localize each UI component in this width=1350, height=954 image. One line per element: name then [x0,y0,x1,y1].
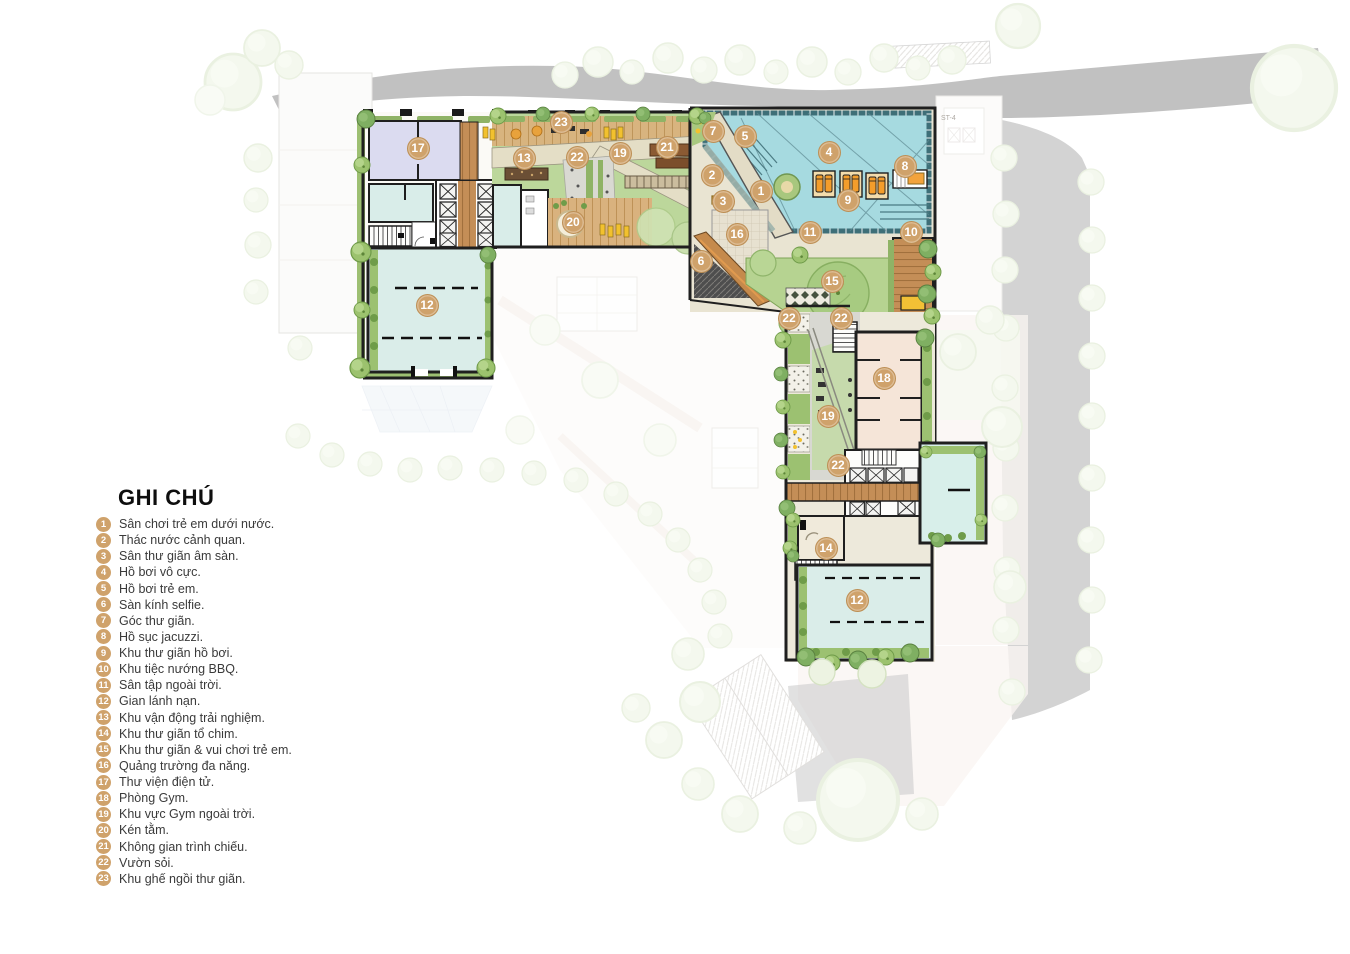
legend-item-2: 2Thác nước cảnh quan. [96,532,292,548]
background-stair-label: ST-4 [941,115,956,122]
plan-marker-19: 19 [817,405,840,428]
legend-item-22: 22Vườn sỏi. [96,855,292,871]
legend-item-label: Hồ bơi trẻ em. [119,582,199,596]
plan-marker-22: 22 [830,307,853,330]
plan-marker-23: 23 [550,111,573,134]
legend-item-number: 7 [96,613,111,628]
legend-item-6: 6Sàn kính selfie. [96,597,292,613]
legend-item-label: Hồ bơi vô cực. [119,565,201,579]
faded-canopy [362,386,492,432]
legend-item-number: 22 [96,855,111,870]
legend-item-number: 21 [96,839,111,854]
legend-item-label: Khu thư giãn hồ bơi. [119,646,233,660]
plan-marker-7: 7 [702,120,725,143]
gym-room [856,332,932,450]
legend-title: GHI CHÚ [118,486,292,510]
legend-item-number: 12 [96,694,111,709]
legend-items: 1Sân chơi trẻ em dưới nước.2Thác nước cả… [96,516,292,887]
legend-item-label: Sân thư giãn âm sàn. [119,549,239,563]
east-room [920,443,986,543]
plan-marker-5: 5 [734,125,757,148]
legend-item-23: 23Khu ghế ngồi thư giãn. [96,871,292,887]
legend-item-number: 16 [96,758,111,773]
legend-item-number: 4 [96,565,111,580]
legend-item-number: 11 [96,678,111,693]
plan-marker-22: 22 [566,146,589,169]
wood-corridor [460,122,478,180]
legend-item-13: 13Khu vận động trải nghiệm. [96,710,292,726]
legend-item-16: 16Quảng trường đa năng. [96,758,292,774]
legend-item-label: Không gian trình chiếu. [119,840,248,854]
legend-item-label: Khu thư giãn & vui chơi trẻ em. [119,743,292,757]
legend-item-4: 4Hồ bơi vô cực. [96,564,292,580]
plan-marker-10: 10 [900,221,923,244]
legend-item-7: 7Góc thư giãn. [96,613,292,629]
wc-room [521,190,548,247]
lobby-west [412,222,438,248]
legend-item-18: 18Phòng Gym. [96,790,292,806]
legend-item-number: 5 [96,581,111,596]
motif-panel [786,288,830,306]
orange-shrub [532,126,542,136]
plan-marker-18: 18 [873,367,896,390]
legend-item-label: Vườn sỏi. [119,856,174,870]
legend-item-number: 2 [96,533,111,548]
legend: GHI CHÚ 1Sân chơi trẻ em dưới nước.2Thác… [96,486,292,887]
legend-item-label: Khu vực Gym ngoài trời. [119,807,255,821]
legend-item-number: 19 [96,807,111,822]
legend-item-17: 17Thư viện điện tử. [96,774,292,790]
plan-marker-15: 15 [821,270,844,293]
legend-item-label: Gian lánh nạn. [119,694,200,708]
faded-building-east [936,96,1002,311]
legend-item-label: Thác nước cảnh quan. [119,533,245,547]
legend-item-8: 8Hồ sục jacuzzi. [96,629,292,645]
legend-item-9: 9Khu thư giãn hồ bơi. [96,645,292,661]
faded-core-2 [712,428,758,488]
legend-item-number: 13 [96,710,111,725]
legend-item-label: Phòng Gym. [119,791,188,805]
plan-marker-4: 4 [818,141,841,164]
legend-item-number: 10 [96,662,111,677]
legend-item-label: Khu tiệc nướng BBQ. [119,662,238,676]
legend-item-number: 9 [96,646,111,661]
room-a [369,184,433,222]
faded-core-1 [557,277,637,331]
plan-canvas: ST-4 75482139231322192117201611106151222… [0,0,1350,954]
legend-item-label: Khu ghế ngồi thư giãn. [119,872,246,886]
legend-item-label: Khu thư giãn tổ chim. [119,727,238,741]
legend-item-number: 18 [96,791,111,806]
legend-item-label: Sàn kính selfie. [119,598,204,612]
legend-item-number: 6 [96,597,111,612]
elevator-core-west [436,180,496,248]
legend-item-1: 1Sân chơi trẻ em dưới nước. [96,516,292,532]
plan-marker-13: 13 [513,147,536,170]
plan-marker-20: 20 [562,211,585,234]
plan-marker-12: 12 [846,589,869,612]
plan-marker-3: 3 [712,190,735,213]
plan-marker-17: 17 [407,137,430,160]
legend-item-19: 19Khu vực Gym ngoài trời. [96,806,292,822]
plan-marker-21: 21 [656,136,679,159]
plan-marker-16: 16 [726,223,749,246]
plan-marker-6: 6 [690,250,713,273]
legend-item-number: 23 [96,871,111,886]
legend-item-3: 3Sân thư giãn âm sàn. [96,548,292,564]
plan-marker-8: 8 [894,155,917,178]
legend-item-label: Thư viện điện tử. [119,775,214,789]
teal-room-strip [493,185,521,247]
legend-item-number: 20 [96,823,111,838]
legend-item-15: 15Khu thư giãn & vui chơi trẻ em. [96,742,292,758]
legend-item-10: 10Khu tiệc nướng BBQ. [96,661,292,677]
legend-item-20: 20Kén tằm. [96,822,292,838]
legend-item-14: 14Khu thư giãn tổ chim. [96,726,292,742]
legend-item-11: 11Sân tập ngoài trời. [96,677,292,693]
wing-wood-deck [786,483,922,501]
plan-marker-11: 11 [799,221,822,244]
legend-item-label: Sân tập ngoài trời. [119,678,222,692]
legend-item-label: Góc thư giãn. [119,614,195,628]
stair-west [369,226,412,246]
orange-shrub [511,129,521,139]
legend-item-5: 5Hồ bơi trẻ em. [96,581,292,597]
legend-item-label: Quảng trường đa năng. [119,759,250,773]
plan-marker-14: 14 [815,537,838,560]
plan-marker-9: 9 [837,189,860,212]
legend-item-label: Kén tằm. [119,823,169,837]
legend-item-label: Khu vận động trải nghiệm. [119,711,265,725]
legend-item-12: 12Gian lánh nạn. [96,693,292,709]
legend-item-number: 15 [96,742,111,757]
plan-marker-12: 12 [416,294,439,317]
plan-marker-1: 1 [750,180,773,203]
legend-item-number: 17 [96,775,111,790]
legend-item-label: Sân chơi trẻ em dưới nước. [119,517,274,531]
plan-marker-22: 22 [778,307,801,330]
legend-item-number: 8 [96,629,111,644]
plan-marker-19: 19 [609,142,632,165]
plan-marker-22: 22 [827,454,850,477]
plan-marker-2: 2 [701,164,724,187]
legend-item-label: Hồ sục jacuzzi. [119,630,203,644]
legend-item-number: 3 [96,549,111,564]
legend-item-21: 21Không gian trình chiếu. [96,839,292,855]
legend-item-number: 1 [96,517,111,532]
legend-item-number: 14 [96,726,111,741]
